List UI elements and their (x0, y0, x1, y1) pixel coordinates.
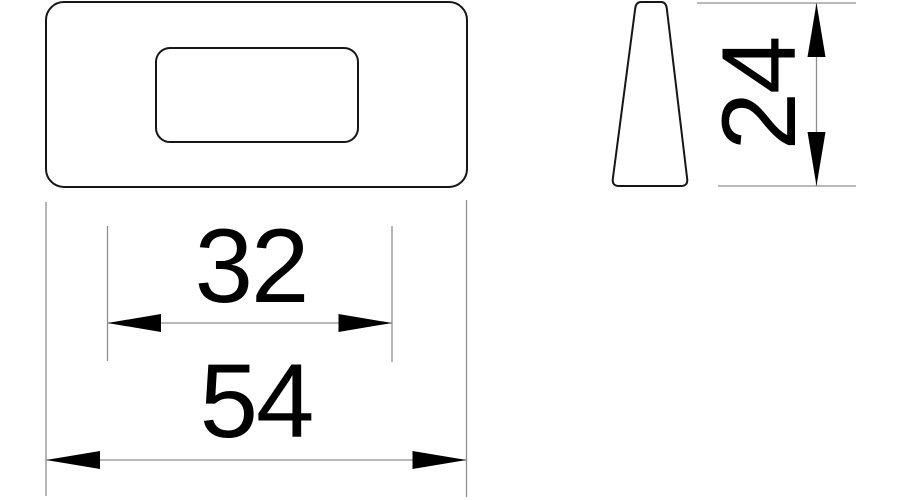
arrowhead-left-icon (46, 451, 100, 469)
arrowhead-right-icon (413, 451, 467, 469)
arrowhead-left-icon (108, 314, 162, 332)
technical-drawing: 32 54 24 (0, 0, 900, 500)
front-view-slot-outline (156, 48, 358, 142)
side-view (613, 2, 688, 186)
dimension-height: 24 (697, 3, 856, 186)
front-view (46, 2, 467, 187)
dimension-value-overall-width: 54 (200, 343, 313, 460)
side-view-outline (613, 2, 688, 186)
dimension-value-height: 24 (701, 38, 818, 151)
dimension-slot-width: 32 (108, 208, 393, 362)
arrowhead-right-icon (339, 314, 393, 332)
dimension-value-slot-width: 32 (195, 208, 308, 325)
front-view-outline (46, 2, 467, 187)
drawing-canvas: 32 54 24 (0, 0, 900, 500)
